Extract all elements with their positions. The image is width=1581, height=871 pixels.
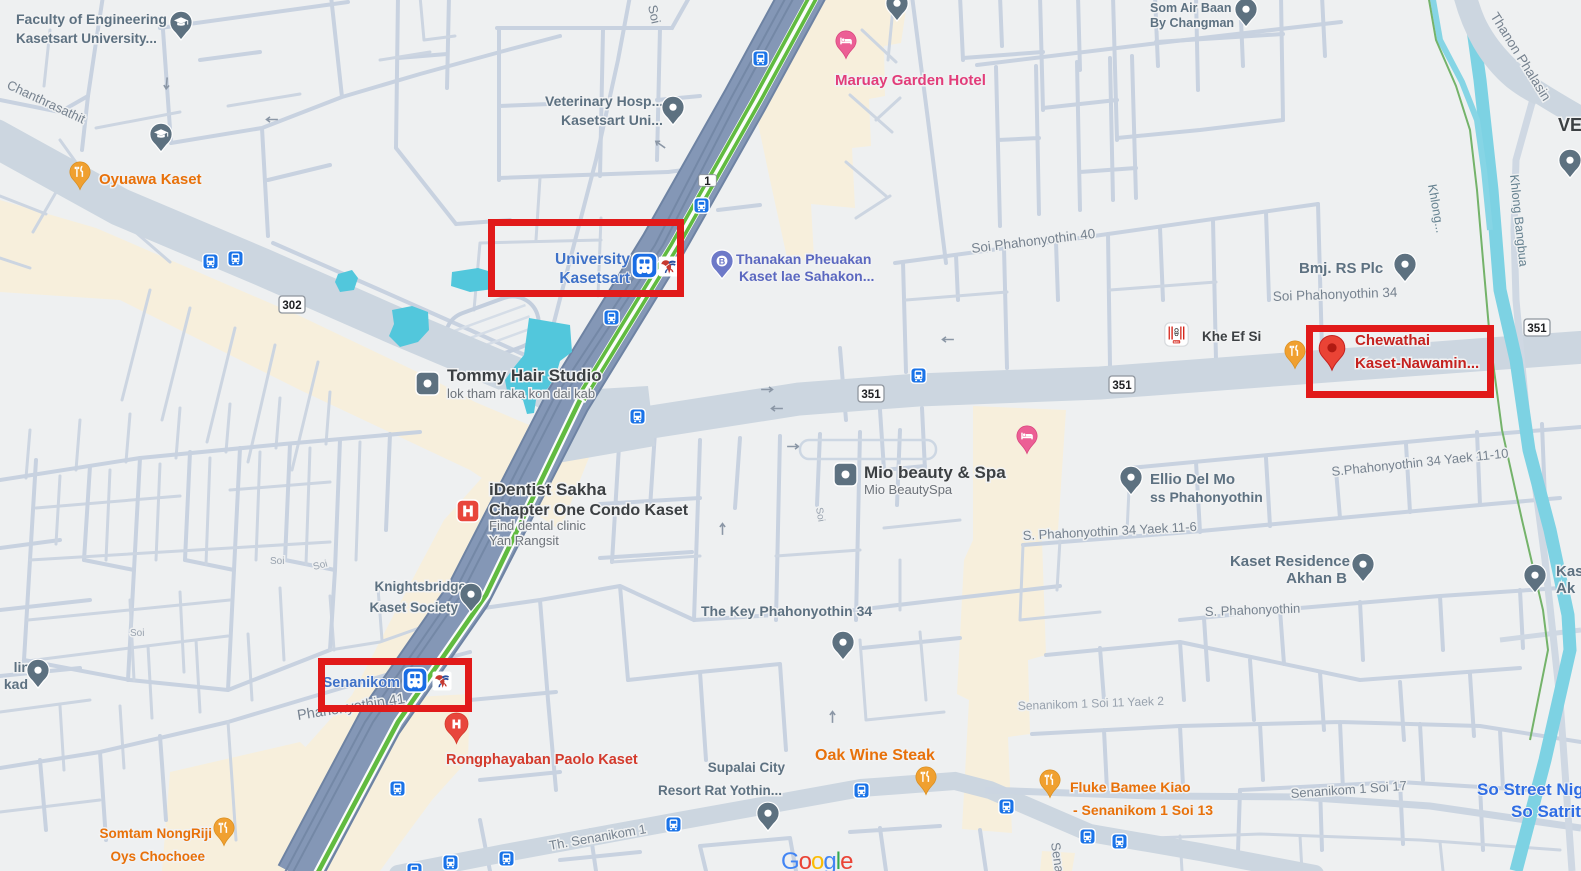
svg-text:351: 351: [861, 389, 881, 401]
svg-text:Som Air Baan: Som Air Baan: [1150, 1, 1232, 15]
svg-text:Supalai City: Supalai City: [708, 760, 786, 775]
svg-text:Oys Chochoee: Oys Chochoee: [110, 849, 205, 864]
svg-text:351: 351: [1527, 323, 1547, 335]
svg-text:Akhan B: Akhan B: [1286, 570, 1347, 587]
svg-text:Soi: Soi: [130, 628, 144, 639]
svg-text:Senanikom: Senanikom: [323, 675, 400, 691]
svg-text:Thanakan Pheuakan: Thanakan Pheuakan: [736, 251, 871, 267]
svg-text:Maruay Garden Hotel: Maruay Garden Hotel: [835, 72, 986, 89]
svg-text:Oak Wine Steak: Oak Wine Steak: [815, 747, 935, 764]
svg-text:Yan Rangsit: Yan Rangsit: [489, 533, 559, 548]
svg-text:Kaset lae Sahakon...: Kaset lae Sahakon...: [739, 268, 874, 284]
svg-text:iDentist Sakha: iDentist Sakha: [489, 480, 607, 499]
svg-text:Kasetsart Uni...: Kasetsart Uni...: [561, 112, 663, 128]
svg-text:lok tham raka kon dai kab: lok tham raka kon dai kab: [447, 386, 595, 401]
svg-text:Kas: Kas: [1556, 563, 1581, 580]
svg-text:Khe Ef Si: Khe Ef Si: [1202, 329, 1261, 344]
svg-text:Kaset-Nawamin...: Kaset-Nawamin...: [1355, 355, 1479, 372]
svg-text:Oyuawa Kaset: Oyuawa Kaset: [99, 171, 202, 188]
svg-text:Chewathai: Chewathai: [1355, 332, 1430, 349]
svg-text:Kaset Society: Kaset Society: [369, 600, 458, 615]
svg-text:University: University: [555, 251, 630, 268]
svg-text:- Senanikom 1 Soi 13: - Senanikom 1 Soi 13: [1073, 802, 1213, 818]
svg-text:Faculty of Engineering: Faculty of Engineering: [16, 11, 167, 27]
svg-text:302: 302: [282, 300, 301, 312]
svg-text:Resort Rat Yothin...: Resort Rat Yothin...: [658, 783, 782, 798]
svg-text:Fluke Bamee Kiao: Fluke Bamee Kiao: [1070, 779, 1191, 795]
svg-text:The Key Phahonyothin 34: The Key Phahonyothin 34: [701, 603, 872, 619]
svg-text:By Changman: By Changman: [1150, 16, 1234, 30]
svg-text:Ellio Del Mo: Ellio Del Mo: [1150, 471, 1235, 488]
svg-text:Ak: Ak: [1556, 580, 1576, 597]
svg-text:B: B: [719, 257, 726, 267]
svg-text:kad: kad: [4, 676, 28, 692]
svg-text:So Satrit I: So Satrit I: [1511, 802, 1581, 821]
svg-text:Rongphayaban Paolo Kaset: Rongphayaban Paolo Kaset: [446, 752, 638, 768]
svg-text:351: 351: [1112, 380, 1132, 392]
svg-text:Find dental clinic: Find dental clinic: [489, 518, 586, 533]
svg-text:Soi: Soi: [270, 556, 284, 567]
svg-text:Tommy Hair Studio: Tommy Hair Studio: [447, 366, 602, 385]
svg-text:Kasetsart: Kasetsart: [559, 270, 630, 287]
svg-text:1: 1: [704, 176, 711, 188]
svg-text:Chapter One Condo Kaset: Chapter One Condo Kaset: [489, 502, 689, 519]
svg-text:ss Phahonyothin: ss Phahonyothin: [1150, 489, 1263, 505]
svg-text:Google: Google: [781, 848, 853, 871]
svg-text:Kasetsart University...: Kasetsart University...: [16, 31, 157, 46]
svg-text:Mio beauty & Spa: Mio beauty & Spa: [864, 463, 1006, 482]
svg-text:Bmj. RS Plc: Bmj. RS Plc: [1299, 260, 1383, 277]
svg-text:Somtam NongRiji: Somtam NongRiji: [99, 826, 212, 841]
svg-text:Knightsbridge: Knightsbridge: [375, 579, 467, 594]
svg-text:So Street Nig: So Street Nig: [1477, 780, 1581, 799]
svg-text:Kaset Residence: Kaset Residence: [1230, 553, 1350, 570]
svg-text:VE: VE: [1558, 115, 1581, 135]
svg-text:Veterinary Hosp...: Veterinary Hosp...: [545, 93, 663, 109]
svg-text:Mio BeautySpa: Mio BeautySpa: [864, 482, 953, 497]
